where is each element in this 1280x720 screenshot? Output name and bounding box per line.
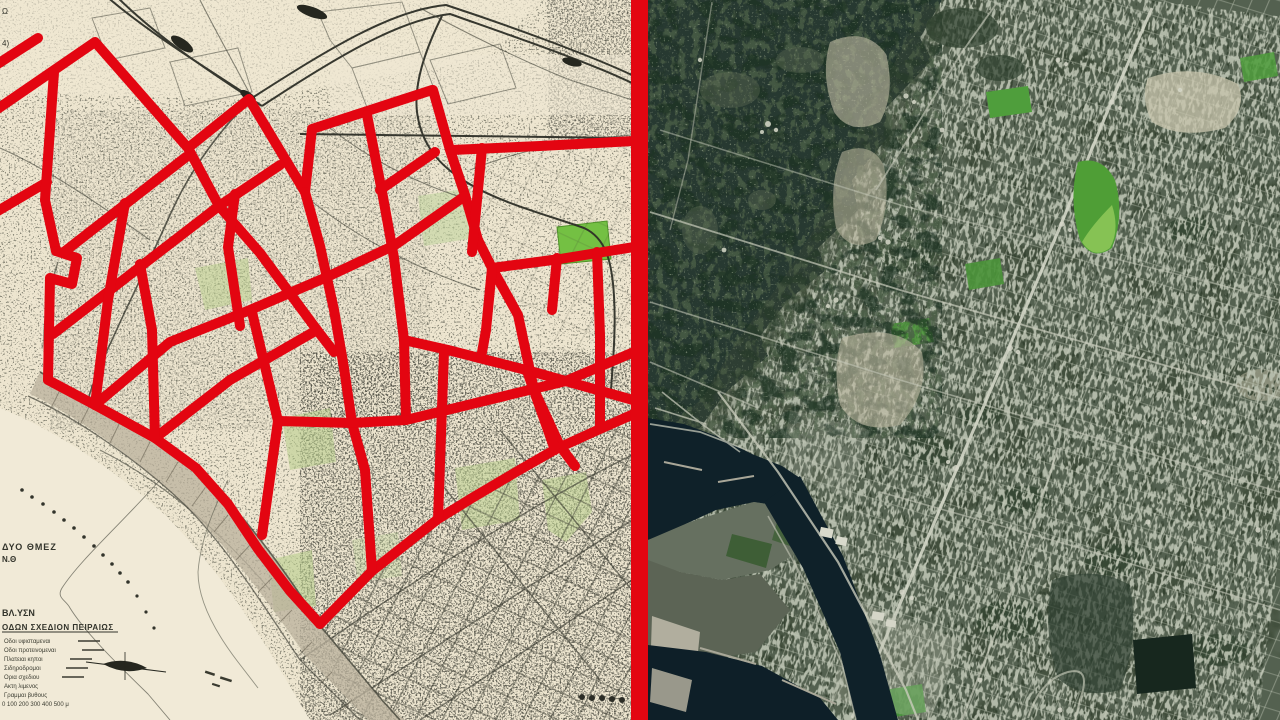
svg-text:Ακτη λιμενος: Ακτη λιμενος: [4, 684, 38, 690]
svg-text:4): 4): [2, 39, 9, 48]
svg-text:Ν.Θ: Ν.Θ: [2, 555, 16, 564]
svg-text:Ω: Ω: [2, 7, 8, 16]
svg-text:Οδοι υφισταμεναι: Οδοι υφισταμεναι: [4, 639, 51, 645]
svg-text:Γραμμαι βυθους: Γραμμαι βυθους: [4, 693, 47, 699]
svg-text:Πλατειαι κηποι: Πλατειαι κηποι: [4, 657, 43, 663]
svg-text:Ορια σχεδιου: Ορια σχεδιου: [4, 675, 39, 681]
svg-text:ΟΔΩΝ ΣΧΕΔΙΟΝ ΠΕΙΡΑΙΩΣ: ΟΔΩΝ ΣΧΕΔΙΟΝ ΠΕΙΡΑΙΩΣ: [2, 623, 114, 632]
svg-text:Οδοι προτεινομεναι: Οδοι προτεινομεναι: [4, 648, 56, 654]
svg-text:ΒΛ.ΥΣΝ: ΒΛ.ΥΣΝ: [2, 608, 35, 618]
svg-text:0 100 200 300 400 500 μ: 0 100 200 300 400 500 μ: [2, 702, 69, 708]
svg-text:Σιδηροδρομοι: Σιδηροδρομοι: [4, 666, 41, 672]
svg-text:ΔΥΟ ΘΜΕΖ: ΔΥΟ ΘΜΕΖ: [2, 542, 57, 552]
